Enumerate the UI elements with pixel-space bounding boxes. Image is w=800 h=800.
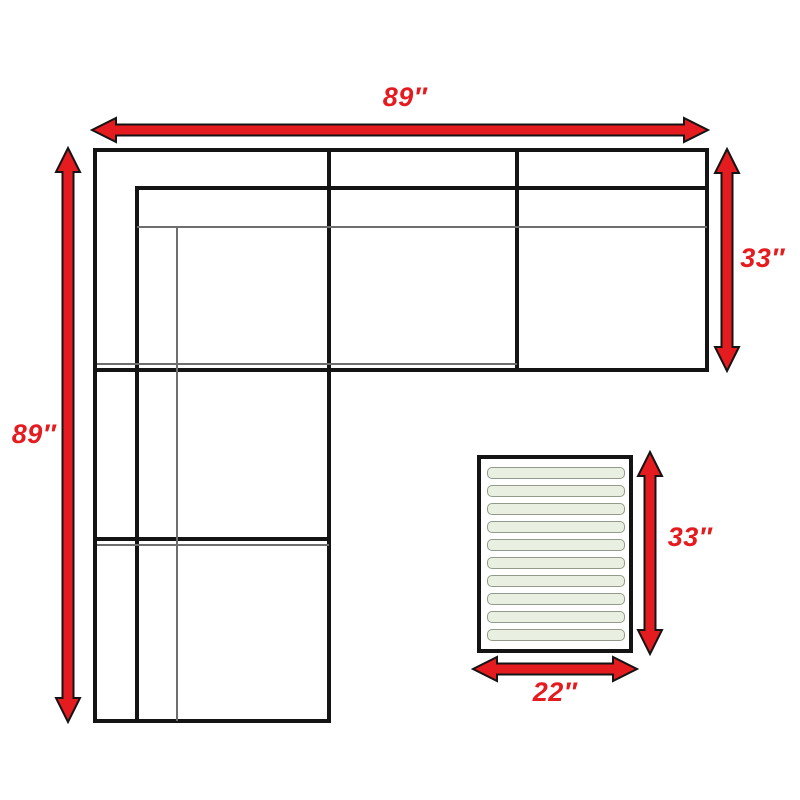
table-width-label: 22″ <box>517 679 593 706</box>
table-slats <box>487 461 625 647</box>
table-length-arrow-icon <box>634 451 666 655</box>
sofa-right-edge <box>705 148 709 372</box>
cushion-line-left <box>176 226 178 721</box>
coffee-table <box>477 455 633 653</box>
sofa-top-edge <box>93 148 709 152</box>
table-length-label: 33″ <box>652 524 728 551</box>
table-slat <box>487 485 625 497</box>
table-slat <box>487 467 625 479</box>
table-slat <box>487 503 625 515</box>
sofa-front-edge <box>93 368 709 372</box>
table-slat <box>487 521 625 533</box>
sofa-seat-divider <box>515 148 519 372</box>
backrest-line-left <box>135 186 139 723</box>
cushion-front-line <box>97 363 517 365</box>
sectional-sofa-dimension-diagram: 89″ 89″ 33″ 33″ 22″ <box>0 0 800 800</box>
sofa-width-arrow-icon <box>91 114 709 146</box>
sofa-depth-label: 33″ <box>725 245 800 272</box>
chaise-bottom-edge <box>93 719 331 723</box>
sofa-length-label: 89″ <box>0 421 68 448</box>
backrest-line-top <box>135 186 709 190</box>
chaise-right-edge <box>327 148 331 723</box>
table-slat <box>487 629 625 641</box>
sofa-left-edge <box>93 148 97 723</box>
table-slat <box>487 575 625 587</box>
table-slat <box>487 611 625 623</box>
sofa-width-label: 89″ <box>355 84 455 111</box>
cushion-line-top <box>137 226 707 228</box>
table-slat <box>487 539 625 551</box>
chaise-cushion-line <box>97 544 329 546</box>
chaise-seat-divider <box>93 537 331 541</box>
table-slat <box>487 593 625 605</box>
table-slat <box>487 557 625 569</box>
